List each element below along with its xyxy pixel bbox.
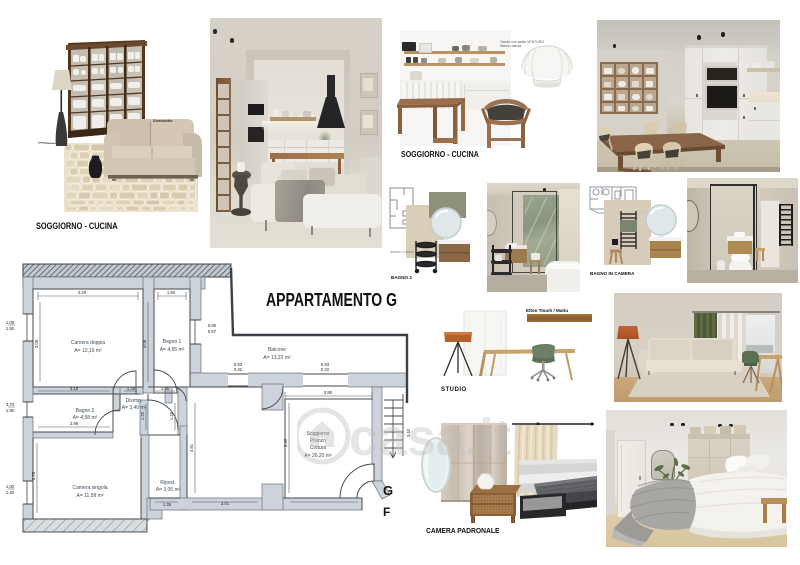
- svg-text:1.35: 1.35: [127, 386, 136, 391]
- svg-text:A= 13,10 m²: A= 13,10 m²: [74, 348, 102, 354]
- svg-text:3.08: 3.08: [142, 339, 147, 348]
- svg-text:G: G: [383, 483, 393, 498]
- svg-text:A= 4,65 m²: A= 4,65 m²: [160, 347, 185, 353]
- svg-text:2.78: 2.78: [31, 471, 36, 480]
- svg-text:0.32: 0.32: [321, 367, 330, 372]
- svg-text:A= 3,05 m²: A= 3,05 m²: [156, 487, 181, 493]
- svg-text:Camera singola: Camera singola: [72, 485, 107, 491]
- svg-text:3.08: 3.08: [34, 339, 39, 348]
- svg-text:1.45: 1.45: [169, 411, 174, 420]
- svg-text:0.32: 0.32: [234, 367, 243, 372]
- svg-text:1.35: 1.35: [163, 502, 172, 507]
- svg-text:1.35: 1.35: [161, 386, 170, 391]
- svg-text:1.40: 1.40: [6, 490, 15, 495]
- svg-text:Balcone: Balcone: [268, 347, 286, 353]
- svg-text:3.01: 3.01: [221, 501, 230, 506]
- svg-text:1.00: 1.00: [6, 320, 15, 325]
- svg-text:3.81: 3.81: [189, 443, 194, 452]
- svg-text:Disimp.: Disimp.: [126, 398, 143, 404]
- svg-text:Cottura: Cottura: [310, 445, 327, 451]
- svg-text:1.20: 1.20: [140, 411, 145, 420]
- svg-text:F: F: [383, 505, 390, 519]
- svg-text:A= 3,40 m²: A= 3,40 m²: [122, 405, 147, 411]
- svg-text:A= 11,59 m²: A= 11,59 m²: [76, 493, 103, 499]
- svg-text:3.18: 3.18: [70, 386, 79, 391]
- svg-text:0.80: 0.80: [208, 323, 217, 328]
- svg-text:A= 4,58 m²: A= 4,58 m²: [73, 415, 98, 421]
- svg-text:3.70: 3.70: [6, 402, 15, 407]
- svg-text:0.87: 0.87: [208, 329, 217, 334]
- svg-text:1.92: 1.92: [167, 290, 176, 295]
- svg-text:A= 26,20 m²: A= 26,20 m²: [304, 453, 332, 459]
- svg-text:Pranzo: Pranzo: [310, 438, 326, 444]
- svg-text:Soggiorno: Soggiorno: [307, 431, 330, 437]
- svg-text:2.96: 2.96: [70, 421, 79, 426]
- svg-text:Divanoletto: Divanoletto: [153, 119, 173, 123]
- svg-text:4.20: 4.20: [78, 290, 87, 295]
- svg-text:Ripost.: Ripost.: [160, 480, 176, 486]
- svg-text:1.50: 1.50: [6, 326, 15, 331]
- svg-text:3.40: 3.40: [283, 438, 288, 447]
- svg-text:Camera doppia: Camera doppia: [71, 340, 105, 346]
- svg-text:A= 13,22 m²: A= 13,22 m²: [263, 355, 291, 361]
- svg-text:Bagno 2: Bagno 2: [76, 408, 95, 414]
- svg-text:1.90: 1.90: [6, 408, 15, 413]
- svg-text:1.00: 1.00: [6, 484, 15, 489]
- svg-text:Bagno 1: Bagno 1: [163, 339, 182, 345]
- svg-text:3.90: 3.90: [324, 390, 333, 395]
- svg-text:Articolo / Lavabo: Articolo / Lavabo: [390, 250, 414, 254]
